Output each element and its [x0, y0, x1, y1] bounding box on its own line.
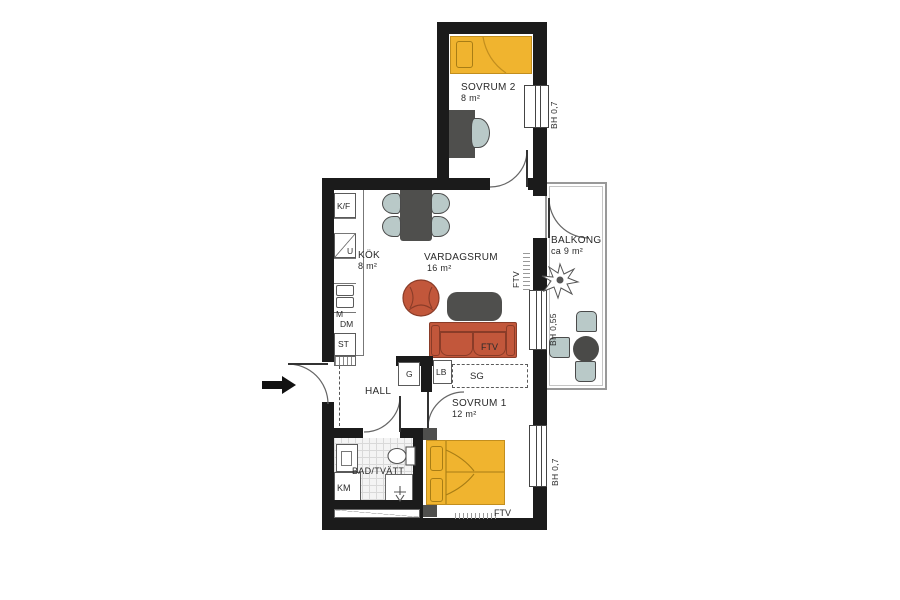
vent-label-sovrum1: FTV [494, 508, 511, 518]
room-name: SOVRUM 2 [461, 82, 516, 93]
wall-segment [322, 190, 334, 362]
bathroom-door-swing [364, 396, 400, 432]
window-sovrum1 [529, 425, 547, 487]
room-label-bad: BAD/TVÄTT [352, 466, 404, 477]
closet-lb-label: LB [436, 367, 446, 377]
counter-divider [334, 233, 356, 234]
wall-segment [322, 178, 490, 190]
dining-chair [382, 216, 401, 237]
sink-faucet [341, 451, 352, 466]
wall-segment [533, 487, 547, 518]
dining-chair [431, 216, 450, 237]
sofa-armrest [506, 325, 515, 356]
wall-segment [533, 34, 547, 87]
room-name: VARDAGSRUM [424, 252, 498, 263]
room-name: BALKONG [551, 235, 601, 246]
wall-segment [533, 238, 547, 292]
dining-chair [431, 193, 450, 214]
window-height-label-vardagsrum: BH 0,55 [548, 296, 558, 346]
vent-label-wall: FTV [511, 252, 521, 288]
wall-segment [437, 34, 449, 178]
washing-machine-label: KM [337, 483, 351, 493]
cleaning-closet-label: ST [338, 339, 349, 349]
room-area: 12 m² [452, 409, 507, 420]
room-name: KÖK [358, 250, 380, 261]
room-area: 16 m² [424, 263, 498, 274]
wall-segment [334, 428, 363, 438]
pillow-sovrum2 [456, 41, 473, 68]
window-height-label-sovrum1: BH 0,7 [550, 430, 560, 486]
sofa-cushion [440, 332, 473, 356]
balcony-chair [576, 311, 597, 332]
fridge-freezer-label: K/F [337, 201, 350, 211]
nightstand [423, 505, 437, 517]
sofa-armrest [431, 325, 440, 356]
sofa-backrest [440, 324, 506, 332]
counter-divider [334, 283, 356, 284]
closet-g-label: G [406, 369, 413, 379]
room-label-sovrum1: SOVRUM 1 12 m² [452, 398, 507, 420]
nightstand [423, 428, 437, 440]
hall-wardrobe-line [339, 366, 341, 426]
window-sovrum2 [524, 85, 549, 128]
dishwasher-label: DM [340, 319, 353, 329]
radiator [455, 513, 497, 519]
counter-end-hatch [334, 356, 356, 366]
wall-segment [437, 22, 547, 34]
entry-arrow-icon [262, 376, 296, 394]
room-area: 8 m² [358, 261, 380, 272]
window-vardagsrum [529, 290, 547, 350]
counter-divider [334, 258, 356, 259]
floor-plan: K/F U M DM ST G LB SG KM [0, 0, 900, 600]
room-area: 8 m² [461, 93, 516, 104]
shower [385, 474, 413, 502]
vent-label-sofa: FTV [481, 342, 498, 352]
oven-label: U [347, 246, 353, 256]
sovrum2-door-swing [490, 150, 527, 187]
microwave-label: M [336, 309, 343, 319]
closet-sg-label: SG [470, 371, 484, 382]
wall-segment [322, 518, 547, 530]
dining-chair [382, 193, 401, 214]
room-name: SOVRUM 1 [452, 398, 507, 409]
wall-segment [421, 356, 432, 392]
desk-chair-sovrum2 [471, 118, 490, 148]
installation-shaft [334, 509, 420, 518]
balcony-railing [545, 182, 607, 390]
pillow-sovrum1 [430, 478, 443, 502]
coffee-table [447, 292, 502, 321]
wall-segment [400, 428, 423, 438]
wall-segment [533, 190, 547, 196]
counter-divider [334, 218, 356, 219]
room-label-hall: HALL [365, 386, 391, 397]
wall-segment [322, 402, 334, 530]
window-height-label-sovrum2: BH 0,7 [549, 85, 559, 129]
room-label-sovrum2: SOVRUM 2 8 m² [461, 82, 516, 104]
pillow-sovrum1 [430, 446, 443, 471]
radiator [523, 250, 530, 290]
wall-segment [533, 350, 547, 425]
dining-table [400, 187, 432, 241]
wall-segment [528, 178, 547, 190]
sink-basin-top [336, 285, 354, 296]
sink-basin-bottom [336, 297, 354, 308]
room-label-vardagsrum: VARDAGSRUM 16 m² [424, 252, 498, 274]
balcony-table [573, 336, 599, 362]
armchair [403, 280, 439, 316]
room-area: ca 9 m² [551, 246, 601, 257]
balcony-chair [575, 361, 596, 382]
entry-door-swing [288, 364, 328, 404]
sofa [429, 322, 517, 358]
wall-segment [533, 126, 547, 178]
room-label-balkong: BALKONG ca 9 m² [551, 235, 601, 257]
closet-sg [452, 364, 528, 388]
room-label-kok: KÖK 8 m² [358, 250, 380, 272]
